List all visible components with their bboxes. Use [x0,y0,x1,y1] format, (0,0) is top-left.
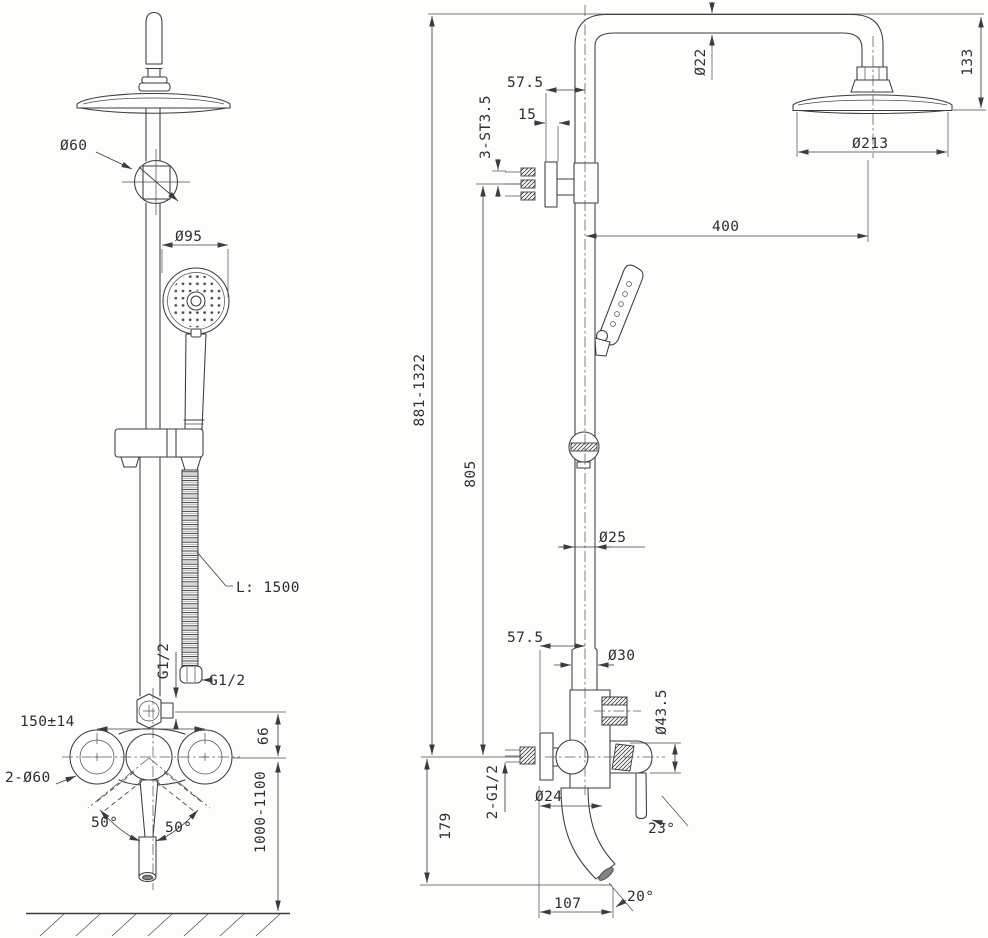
dim-flange-depth: 15 [518,107,536,123]
ball-joint [122,149,190,215]
dim-wall-flange-dia: 2-Ø60 [5,770,51,786]
drawing-sheet: Ø60 Ø95 L: 1500 G1/2 G1/2 150±14 2-Ø60 6… [0,0,988,938]
dim-outlet-drop: 179 [438,812,454,839]
dim-hose-thread: G1/2 [156,643,172,680]
dim-riser-height: 805 [463,460,479,487]
dim-arm-reach: 400 [712,219,739,235]
wall-bracket-upper [505,162,598,207]
dim-spout-reach: 107 [554,896,581,912]
dim-riser-dia: Ø25 [599,530,626,546]
mixer-spout-side [561,788,615,882]
dim-overall-height: 881-1322 [412,353,428,426]
dim-hand-shower-dia: Ø95 [175,229,202,245]
side-dimensions: 881-1322 805 Ø22 133 Ø213 400 57.5 15 [412,2,986,918]
dim-head-dia: Ø213 [852,136,889,152]
dim-swing-right: 50° [165,820,192,836]
mixer-spout-front [139,837,156,882]
dim-inlet-thread: 2-G1/2 [485,765,501,820]
mixer-handle-front [140,780,158,837]
top-cap [139,13,170,92]
hose-outlet [161,703,173,718]
handle-neck [612,744,634,771]
shower-hose [180,470,202,683]
shower-arm [575,15,883,68]
dim-mount-height: 1000-1100 [253,771,269,853]
hand-shower-front [163,268,229,429]
slider-lever [121,457,139,467]
screw-icon [521,168,535,176]
front-view: Ø60 Ø95 L: 1500 G1/2 G1/2 150±14 2-Ø60 6… [5,13,300,937]
dim-screw-spec: 3-ST3.5 [478,95,494,159]
dim-handle-angle: 23° [648,821,675,837]
dim-valve-dia: Ø43.5 [654,689,670,735]
dim-bracket-offset-bottom: 57.5 [507,630,544,646]
dim-arm-dia: Ø22 [693,48,709,75]
handle-rod [636,773,647,819]
hand-shower-side [595,265,643,356]
dim-swing-left: 50° [91,815,118,831]
dim-spout-angle: 20° [627,889,654,905]
dim-hose-length: L: 1500 [236,580,300,596]
screw-icon [521,180,535,188]
dim-outlet-thread: G1/2 [209,673,246,689]
hose-nut [180,666,202,683]
technical-drawing: Ø60 Ø95 L: 1500 G1/2 G1/2 150±14 2-Ø60 6… [0,0,988,938]
floor-hatching [40,914,280,936]
screw-icon [521,192,535,200]
screw-icon [520,747,535,764]
overhead-shower-front [77,94,230,114]
riser-pipe-side [572,15,883,691]
slider-bracket [115,429,203,470]
dim-lower-riser-dia: Ø30 [608,648,635,664]
side-view: 881-1322 805 Ø22 133 Ø213 400 57.5 15 [412,2,986,918]
dim-head-drop: 133 [960,48,976,75]
dim-bracket-offset-top: 57.5 [507,75,544,91]
dim-ball-joint-dia: Ø60 [60,138,87,154]
dim-inlet-spread: 150±14 [20,714,75,730]
overhead-shower-side [793,67,952,114]
floor [26,914,290,937]
dim-outlet-offset: 66 [256,727,272,745]
